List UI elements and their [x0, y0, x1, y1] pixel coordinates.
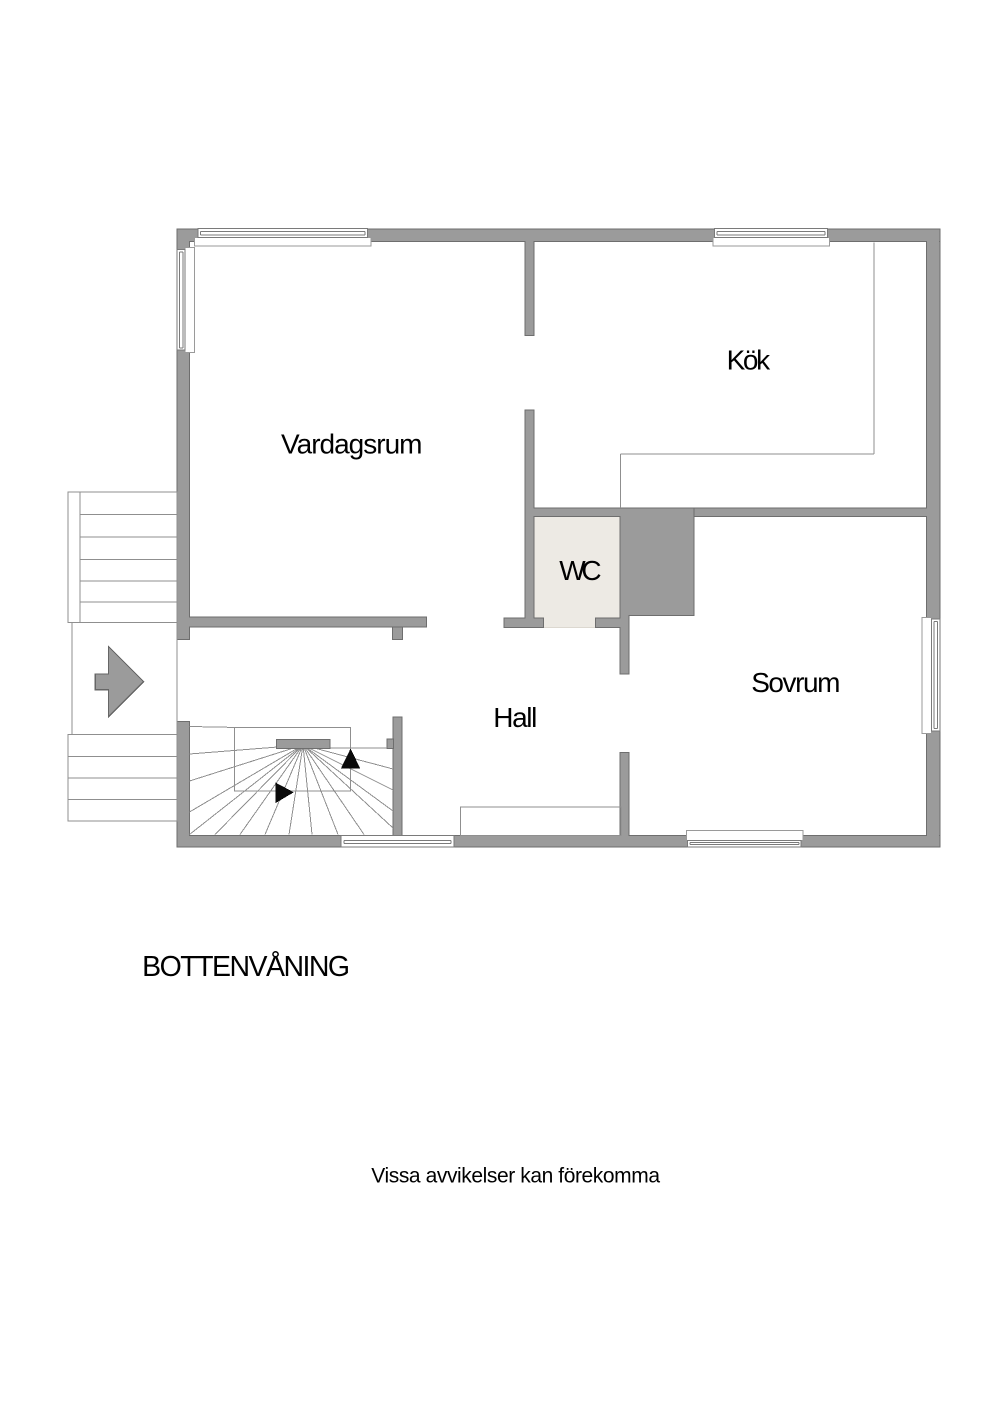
svg-text:Sovrum: Sovrum: [751, 667, 840, 698]
svg-text:Kök: Kök: [727, 344, 772, 375]
svg-text:WC: WC: [559, 555, 601, 586]
svg-text:Vardagsrum: Vardagsrum: [281, 428, 423, 459]
svg-text:BOTTENVÅNING: BOTTENVÅNING: [142, 951, 350, 983]
svg-text:Vissa avvikelser kan förekomma: Vissa avvikelser kan förekomma: [371, 1165, 660, 1188]
svg-text:Hall: Hall: [493, 702, 537, 733]
